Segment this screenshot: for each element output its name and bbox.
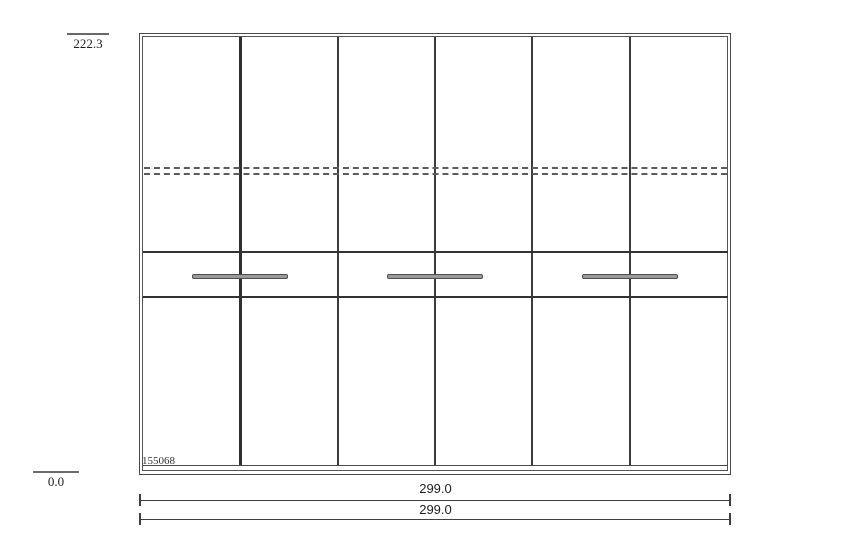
baseline-dimension-label: 0.0 xyxy=(36,474,76,490)
baseline-dimension-line xyxy=(33,471,79,473)
drawer-handle-3 xyxy=(582,274,678,279)
width-dimension-line-2 xyxy=(140,519,731,520)
drawer-handle-1 xyxy=(192,274,288,279)
width-dimension-label-1: 299.0 xyxy=(140,481,731,496)
width-dimension-line-1 xyxy=(140,500,731,501)
door-bottom-line xyxy=(143,465,728,466)
drawer-handle-2 xyxy=(387,274,483,279)
width-dimension-tick-right-2 xyxy=(729,513,731,525)
technical-drawing-canvas: 155068 222.3 0.0 299.0 299.0 xyxy=(0,0,865,541)
height-dimension-label: 222.3 xyxy=(67,36,109,52)
drawer-band-top-line xyxy=(143,251,728,253)
hidden-rail-dashed-line-2 xyxy=(144,173,727,175)
hidden-rail-dashed-line-1 xyxy=(144,167,727,169)
item-number-label: 155068 xyxy=(142,455,175,467)
height-dimension-line xyxy=(67,33,109,35)
width-dimension-label-2: 299.0 xyxy=(140,502,731,517)
width-dimension-tick-left-2 xyxy=(139,513,141,525)
drawer-band-bottom-line xyxy=(143,296,728,298)
